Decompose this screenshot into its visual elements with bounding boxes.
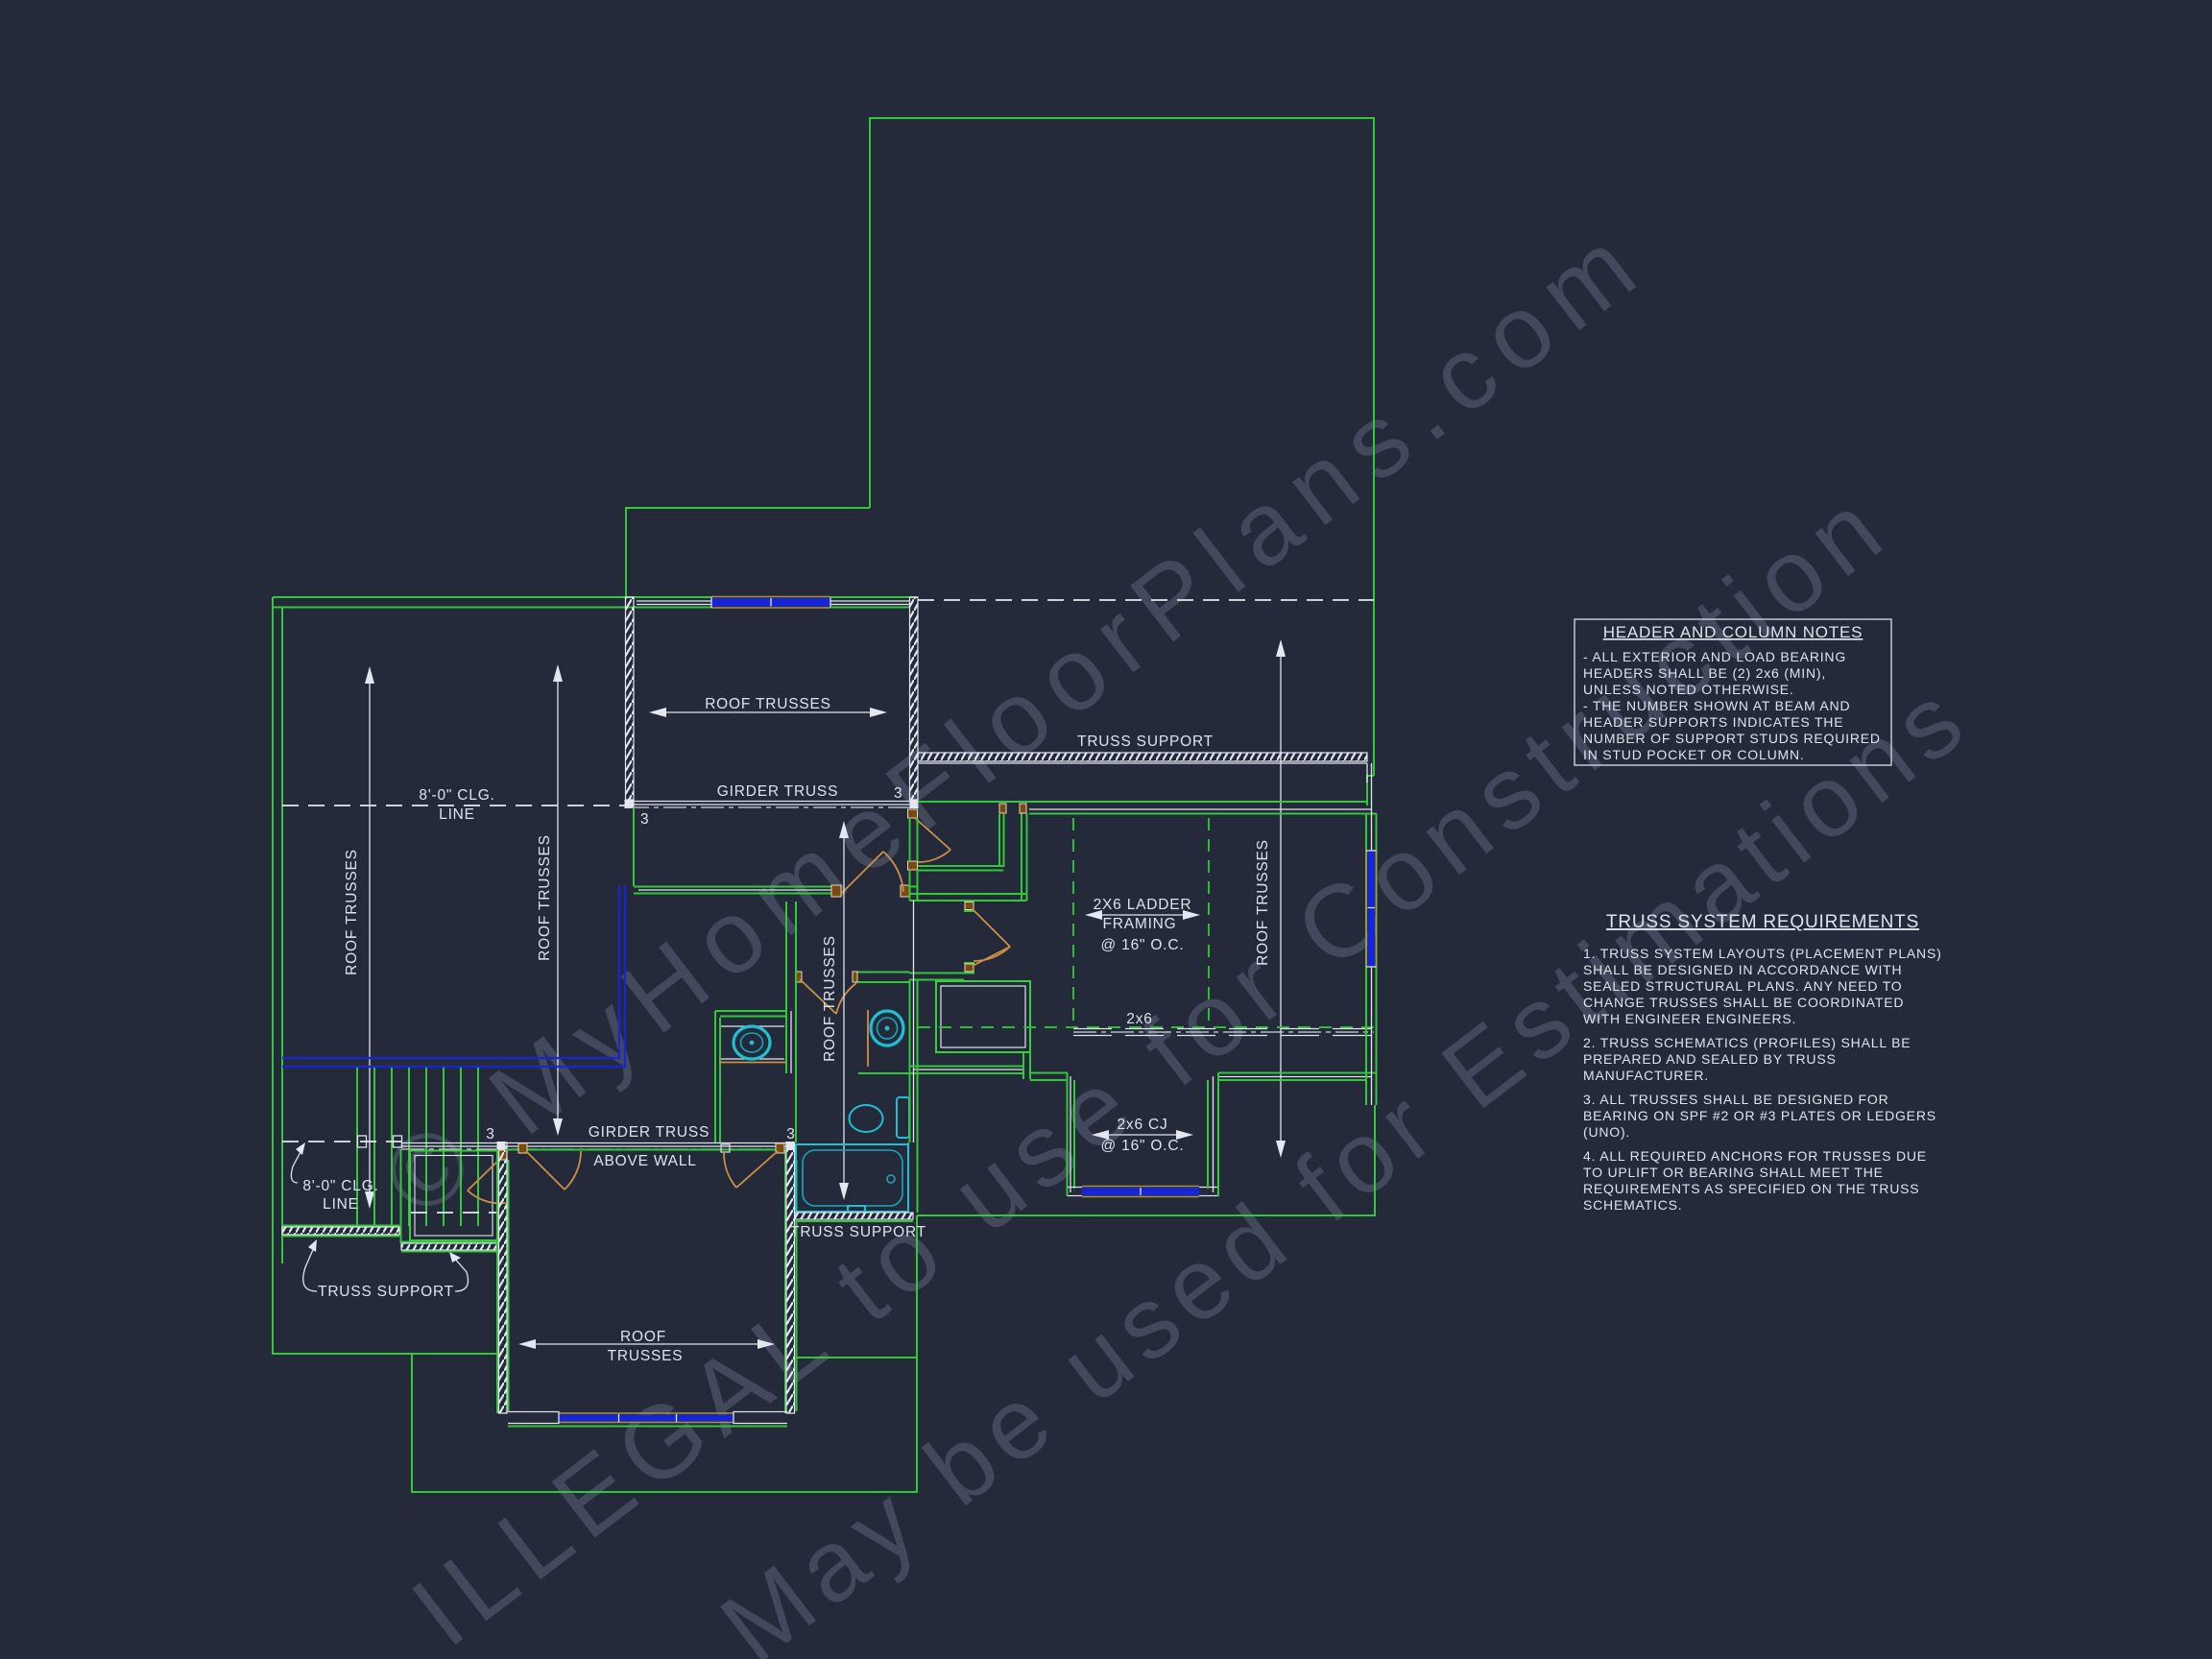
svg-text:SCHEMATICS.: SCHEMATICS.	[1583, 1197, 1682, 1213]
svg-text:- ALL EXTERIOR AND LOAD BEARIN: - ALL EXTERIOR AND LOAD BEARING	[1583, 649, 1846, 664]
svg-text:TRUSS SYSTEM REQUIREMENTS: TRUSS SYSTEM REQUIREMENTS	[1606, 912, 1919, 932]
svg-text:NUMBER OF SUPPORT STUDS REQUIR: NUMBER OF SUPPORT STUDS REQUIRED	[1583, 731, 1881, 746]
svg-text:GIRDER TRUSS: GIRDER TRUSS	[717, 783, 838, 800]
svg-text:IN STUD POCKET OR COLUMN.: IN STUD POCKET OR COLUMN.	[1583, 747, 1805, 762]
svg-text:2x6: 2x6	[1126, 1011, 1152, 1027]
svg-text:REQUIREMENTS AS SPECIFIED ON T: REQUIREMENTS AS SPECIFIED ON THE TRUSS	[1583, 1181, 1919, 1196]
svg-text:TRUSS SUPPORT: TRUSS SUPPORT	[790, 1224, 926, 1240]
svg-text:PREPARED AND SEALED BY TRUSS: PREPARED AND SEALED BY TRUSS	[1583, 1051, 1837, 1067]
svg-text:ROOF: ROOF	[620, 1329, 666, 1345]
svg-text:UNLESS NOTED OTHERWISE.: UNLESS NOTED OTHERWISE.	[1583, 682, 1794, 697]
svg-text:WITH ENGINEER ENGINEERS.: WITH ENGINEER ENGINEERS.	[1583, 1011, 1796, 1026]
svg-text:SEALED STRUCTURAL PLANS. ANY N: SEALED STRUCTURAL PLANS. ANY NEED TO	[1583, 978, 1903, 994]
svg-text:ROOF TRUSSES: ROOF TRUSSES	[537, 834, 553, 961]
svg-text:CHANGE TRUSSES SHALL BE COORDI: CHANGE TRUSSES SHALL BE COORDINATED	[1583, 995, 1904, 1010]
svg-text:MANUFACTURER.: MANUFACTURER.	[1583, 1068, 1709, 1083]
svg-text:3: 3	[786, 1126, 795, 1142]
svg-text:4. ALL REQUIRED ANCHORS FOR TR: 4. ALL REQUIRED ANCHORS FOR TRUSSES DUE	[1583, 1148, 1927, 1164]
svg-text:BEARING ON SPF #2 OR #3 PLATES: BEARING ON SPF #2 OR #3 PLATES OR LEDGER…	[1583, 1108, 1936, 1123]
svg-text:- THE NUMBER SHOWN AT BEAM AND: - THE NUMBER SHOWN AT BEAM AND	[1583, 698, 1850, 713]
svg-text:GIRDER TRUSS: GIRDER TRUSS	[589, 1124, 709, 1141]
svg-text:3: 3	[486, 1126, 494, 1142]
svg-text:8'-0" CLG.: 8'-0" CLG.	[419, 787, 494, 804]
svg-text:TO UPLIFT OR BEARING SHALL MEE: TO UPLIFT OR BEARING SHALL MEET THE	[1583, 1165, 1884, 1180]
svg-text:TRUSS SUPPORT: TRUSS SUPPORT	[1077, 733, 1214, 750]
svg-text:3: 3	[640, 811, 649, 828]
svg-text:ROOF TRUSSES: ROOF TRUSSES	[822, 935, 838, 1062]
svg-text:(UNO).: (UNO).	[1583, 1124, 1630, 1140]
svg-text:2x6 CJ: 2x6 CJ	[1117, 1117, 1167, 1133]
svg-text:ABOVE WALL: ABOVE WALL	[593, 1153, 696, 1169]
svg-text:ROOF TRUSSES: ROOF TRUSSES	[1255, 839, 1271, 966]
svg-text:3. ALL TRUSSES SHALL BE DESIGN: 3. ALL TRUSSES SHALL BE DESIGNED FOR	[1583, 1092, 1889, 1107]
svg-text:@ 16" O.C.: @ 16" O.C.	[1101, 937, 1185, 953]
svg-text:ROOF TRUSSES: ROOF TRUSSES	[344, 849, 360, 975]
svg-text:HEADER AND COLUMN NOTES: HEADER AND COLUMN NOTES	[1603, 623, 1863, 641]
svg-text:SHALL BE DESIGNED IN ACCORDANC: SHALL BE DESIGNED IN ACCORDANCE WITH	[1583, 962, 1902, 977]
svg-text:3: 3	[894, 785, 902, 802]
svg-text:FRAMING: FRAMING	[1102, 916, 1176, 932]
svg-text:TRUSS SUPPORT: TRUSS SUPPORT	[318, 1284, 454, 1300]
svg-text:TRUSSES: TRUSSES	[608, 1348, 684, 1364]
svg-text:1. TRUSS SYSTEM LAYOUTS (PLACE: 1. TRUSS SYSTEM LAYOUTS (PLACEMENT PLANS…	[1583, 946, 1942, 961]
svg-text:@ 16" O.C.: @ 16" O.C.	[1101, 1138, 1185, 1154]
svg-text:HEADER SUPPORTS INDICATES THE: HEADER SUPPORTS INDICATES THE	[1583, 714, 1843, 730]
svg-text:LINE: LINE	[323, 1196, 359, 1213]
svg-text:8'-0" CLG.: 8'-0" CLG.	[302, 1178, 378, 1194]
svg-text:LINE: LINE	[439, 806, 475, 823]
svg-text:HEADERS SHALL BE (2) 2x6 (MIN): HEADERS SHALL BE (2) 2x6 (MIN),	[1583, 665, 1826, 681]
svg-text:2. TRUSS SCHEMATICS (PROFILES): 2. TRUSS SCHEMATICS (PROFILES) SHALL BE	[1583, 1035, 1911, 1050]
svg-text:2X6 LADDER: 2X6 LADDER	[1094, 897, 1192, 913]
svg-text:ROOF TRUSSES: ROOF TRUSSES	[705, 696, 831, 712]
